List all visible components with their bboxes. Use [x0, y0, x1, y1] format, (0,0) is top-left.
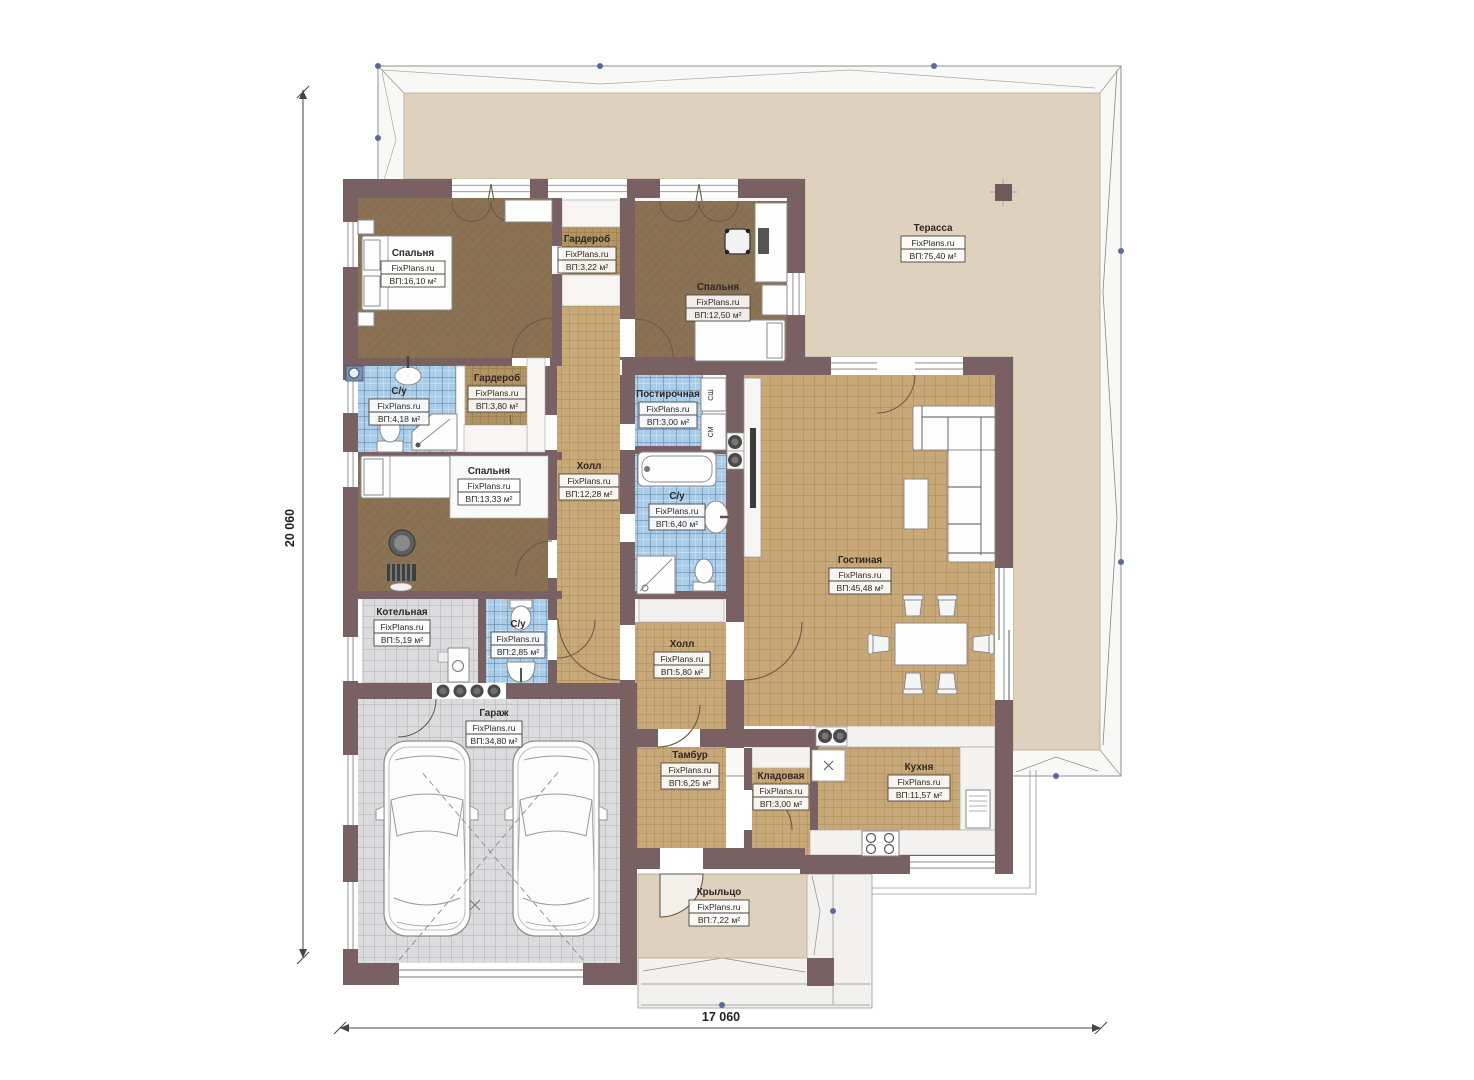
svg-text:СШ: СШ — [708, 389, 715, 400]
svg-text:FixPlans.ru: FixPlans.ru — [698, 902, 741, 912]
svg-text:ВП:6,40 м²: ВП:6,40 м² — [656, 519, 698, 529]
svg-text:20 060: 20 060 — [283, 509, 297, 547]
svg-text:Спальня: Спальня — [468, 466, 511, 477]
svg-text:Кладовая: Кладовая — [758, 771, 805, 782]
svg-text:FixPlans.ru: FixPlans.ru — [661, 654, 704, 664]
svg-text:FixPlans.ru: FixPlans.ru — [912, 238, 955, 248]
svg-text:С/у: С/у — [510, 619, 526, 630]
svg-text:FixPlans.ru: FixPlans.ru — [468, 481, 511, 491]
svg-text:FixPlans.ru: FixPlans.ru — [566, 249, 609, 259]
svg-text:FixPlans.ru: FixPlans.ru — [378, 401, 421, 411]
svg-text:Спальня: Спальня — [392, 248, 435, 259]
svg-text:ВП:3,80 м²: ВП:3,80 м² — [476, 401, 518, 411]
svg-text:ВП:34,80 м²: ВП:34,80 м² — [471, 736, 518, 746]
svg-text:Гараж: Гараж — [479, 708, 509, 719]
svg-text:ВП:3,22 м²: ВП:3,22 м² — [566, 262, 608, 272]
svg-text:Постирочная: Постирочная — [636, 389, 700, 400]
svg-text:ВП:4,18 м²: ВП:4,18 м² — [378, 414, 420, 424]
svg-text:Тамбур: Тамбур — [672, 750, 708, 761]
svg-text:ВП:7,22 м²: ВП:7,22 м² — [698, 915, 740, 925]
svg-text:17 060: 17 060 — [702, 1010, 740, 1024]
svg-text:Холл: Холл — [670, 639, 695, 650]
svg-text:ВП:75,40 м²: ВП:75,40 м² — [910, 251, 957, 261]
svg-text:ВП:13,33 м²: ВП:13,33 м² — [466, 494, 513, 504]
svg-text:ВП:3,00 м²: ВП:3,00 м² — [647, 417, 689, 427]
svg-text:FixPlans.ru: FixPlans.ru — [898, 777, 941, 787]
svg-text:ВП:11,57 м²: ВП:11,57 м² — [896, 790, 942, 800]
svg-text:ВП:12,50 м²: ВП:12,50 м² — [695, 310, 742, 320]
svg-text:FixPlans.ru: FixPlans.ru — [669, 765, 712, 775]
svg-text:FixPlans.ru: FixPlans.ru — [473, 723, 516, 733]
svg-text:С/у: С/у — [391, 386, 407, 397]
svg-text:FixPlans.ru: FixPlans.ru — [568, 476, 611, 486]
svg-text:ВП:2,85 м²: ВП:2,85 м² — [497, 647, 539, 657]
svg-text:ВП:45,48 м²: ВП:45,48 м² — [837, 583, 884, 593]
svg-text:Холл: Холл — [577, 461, 602, 472]
svg-text:Кухня: Кухня — [905, 762, 934, 773]
svg-text:СМ: СМ — [708, 426, 715, 437]
svg-text:FixPlans.ru: FixPlans.ru — [656, 506, 699, 516]
svg-text:Спальня: Спальня — [697, 282, 740, 293]
svg-text:ВП:5,19 м²: ВП:5,19 м² — [381, 635, 423, 645]
svg-text:Терасса: Терасса — [914, 223, 953, 234]
svg-text:FixPlans.ru: FixPlans.ru — [392, 263, 435, 273]
svg-text:Котельная: Котельная — [376, 607, 428, 618]
svg-text:ВП:3,00 м²: ВП:3,00 м² — [760, 799, 802, 809]
svg-text:ВП:5,80 м²: ВП:5,80 м² — [661, 667, 703, 677]
svg-text:FixPlans.ru: FixPlans.ru — [839, 570, 882, 580]
svg-text:ВП:6,25 м²: ВП:6,25 м² — [669, 778, 711, 788]
svg-text:Гардероб: Гардероб — [474, 373, 520, 384]
svg-text:С/у: С/у — [669, 491, 685, 502]
svg-text:FixPlans.ru: FixPlans.ru — [697, 297, 740, 307]
svg-text:FixPlans.ru: FixPlans.ru — [476, 388, 519, 398]
svg-text:ВП:16,10 м²: ВП:16,10 м² — [390, 276, 437, 286]
svg-text:Гардероб: Гардероб — [564, 234, 610, 245]
svg-text:ВП:12,28 м²: ВП:12,28 м² — [566, 489, 613, 499]
svg-text:FixPlans.ru: FixPlans.ru — [381, 622, 424, 632]
svg-text:Гостиная: Гостиная — [838, 555, 883, 566]
svg-text:Крыльцо: Крыльцо — [697, 887, 742, 898]
svg-text:FixPlans.ru: FixPlans.ru — [760, 786, 803, 796]
svg-text:FixPlans.ru: FixPlans.ru — [647, 404, 690, 414]
svg-text:FixPlans.ru: FixPlans.ru — [497, 634, 540, 644]
